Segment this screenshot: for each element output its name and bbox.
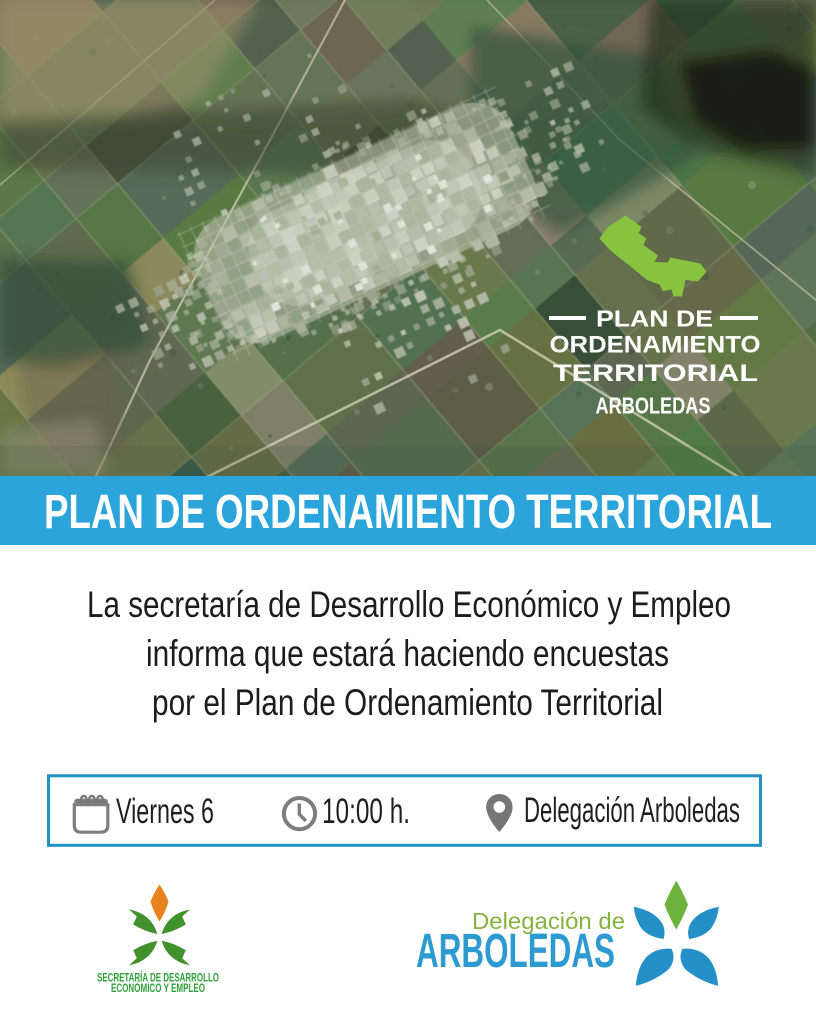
svg-text:ARBOLEDAS: ARBOLEDAS [416, 925, 615, 978]
svg-text:10:00 h.: 10:00 h. [322, 792, 410, 831]
svg-text:ORDENAMIENTO: ORDENAMIENTO [550, 331, 761, 358]
svg-text:ECONÓMICO Y EMPLEO: ECONÓMICO Y EMPLEO [111, 982, 205, 995]
svg-text:por el Plan de Ordenamiento Te: por el Plan de Ordenamiento Territorial [152, 681, 663, 723]
svg-text:PLAN DE ORDENAMIENTO TERRITORI: PLAN DE ORDENAMIENTO TERRITORIAL [44, 486, 772, 539]
svg-text:informa que estará haciendo en: informa que estará haciendo encuestas [146, 632, 669, 674]
svg-text:TERRITORIAL: TERRITORIAL [553, 360, 758, 387]
svg-text:ARBOLEDAS: ARBOLEDAS [596, 393, 711, 419]
svg-text:Delegación Arboledas: Delegación Arboledas [524, 791, 740, 830]
svg-text:La secretaría de Desarrollo Ec: La secretaría de Desarrollo Económico y … [87, 583, 731, 625]
svg-text:Viernes 6: Viernes 6 [116, 792, 214, 831]
svg-text:PLAN DE: PLAN DE [596, 306, 713, 332]
